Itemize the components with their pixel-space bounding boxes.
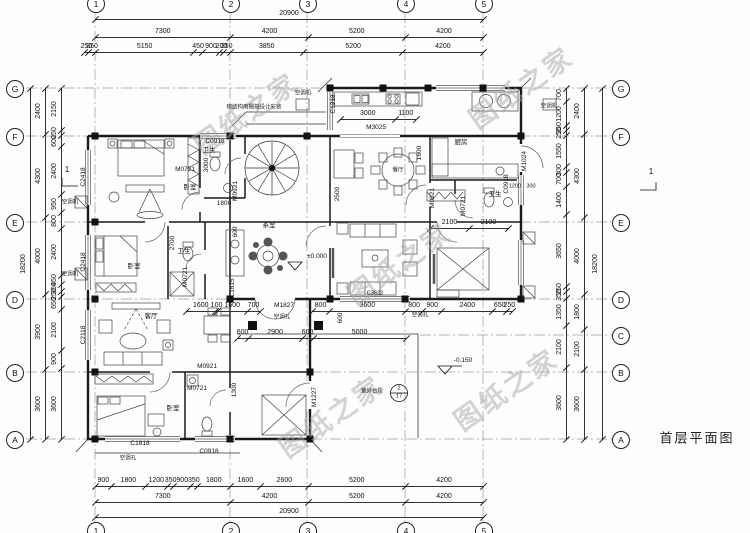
grid-bubble-left-G: G (6, 80, 24, 98)
grid-bubble-right-E: E (612, 214, 630, 232)
spiral-staircase (245, 141, 299, 195)
window-tag-c2118: C2118 (81, 326, 88, 345)
grid-bubble-left-A: A (6, 431, 24, 449)
room-label-bedroom-3: 卧室 (167, 406, 180, 413)
note-ac-hole-3: 空调孔 (412, 313, 429, 319)
room-label-bath-2: 卫生 (178, 249, 191, 256)
window-tag-c0918-d: C0918 (199, 449, 218, 456)
inline-dim-3000: 3000 (204, 158, 211, 172)
grid-bubble-right-B: B (612, 364, 630, 382)
grid-bubble-bottom-4: 4 (397, 522, 415, 533)
note-ac-unit-3: 空调机 (62, 200, 79, 206)
inline-dim-1800: 1800 (217, 201, 231, 208)
detail-ref-number: 2 (397, 386, 400, 392)
door-tag-m1827: M1827 (274, 303, 294, 310)
inline-dim-2500: 2500 (335, 187, 342, 201)
inline-dim-1300: 1300 (232, 383, 239, 397)
window-tag-c2418-b: C2418 (81, 252, 88, 271)
grid-bubble-bottom-5: 5 (475, 522, 493, 533)
grid-bubble-bottom-3: 3 (299, 522, 317, 533)
room-label-bedroom-2: 卧室 (128, 264, 141, 271)
inline-dim-300: 300 (526, 184, 535, 190)
inline-dim-1200: 1200 (509, 184, 521, 190)
room-label-kitchen: 厨房 (455, 140, 468, 147)
window-tag-c2418-a: C2418 (81, 167, 88, 186)
inline-dim-2700: 2700 (170, 236, 177, 250)
room-label-bath-3: 卫生 (489, 192, 502, 199)
inline-dim-600-a: 600 (233, 227, 240, 238)
inline-dim-1600: 1600 (417, 146, 424, 160)
grid-bubble-left-E: E (6, 214, 24, 232)
door-tag-m0721-c: M0721 (183, 267, 190, 287)
door-tag-m0721-b: M0721 (461, 196, 468, 216)
door-tag-m3025: M3025 (366, 125, 386, 132)
room-label-bedroom-1: 卧室 (184, 185, 197, 192)
note-ac-hole-2: 空调孔 (274, 315, 291, 321)
floor-plan-sheet: 1 2 3 4 5 1 2 3 4 5 G F E D B A G F E D … (0, 0, 750, 533)
window-tag-c3622: C3622 (367, 291, 383, 297)
inline-dim-600-b: 600 (338, 313, 345, 324)
note-ac-unit-4: 空调机 (62, 272, 79, 278)
door-tag-m0921-b: M0921 (430, 188, 437, 208)
grid-bubble-right-C: C (612, 327, 630, 345)
grid-bubble-right-A: A (612, 431, 630, 449)
grid-bubble-right-F: F (612, 128, 630, 146)
room-label-tea: 茶室 (263, 223, 276, 230)
door-tag-m1024: M1024 (522, 151, 529, 171)
grid-bubble-right-D: D (612, 291, 630, 309)
grid-bubble-bottom-2: 2 (222, 522, 240, 533)
note-ac-unit-2: 空调机 (541, 104, 558, 110)
grid-bubble-left-F: F (6, 128, 24, 146)
door-tag-m0721-d: M0721 (187, 386, 207, 393)
label-outdoor-steps: 室外台阶 (361, 389, 383, 395)
door-tag-m0721-a: M0721 (175, 167, 195, 174)
grid-bubble-left-D: D (6, 291, 24, 309)
grid-bubble-right-G: G (612, 80, 630, 98)
door-tag-m0921-c: M0921 (197, 364, 217, 371)
room-label-bath-1: 卫生 (203, 148, 216, 155)
room-label-living: 客厅 (145, 314, 158, 321)
level-zero: ±0.000 (307, 254, 327, 261)
interior-walls (88, 136, 521, 439)
section-marker-left: 1 (65, 166, 69, 174)
window-tag-c1218: C1218 (331, 94, 338, 113)
window-tag-c1615: C1615 (230, 278, 237, 297)
door-tag-m1227: M1227 (312, 387, 319, 407)
grid-bubble-bottom-1: 1 (87, 522, 105, 533)
door-tag-m0921-a: M0921 (233, 181, 240, 201)
note-ac-unit-1: 空调机 (295, 91, 312, 97)
grid-bubble-left-B: B (6, 364, 24, 382)
section-marker-right: 1 (649, 168, 653, 176)
window-tag-c0918-a: C0918 (205, 139, 224, 146)
window-tag-c1818: C1818 (130, 441, 149, 448)
room-label-dining: 餐厅 (392, 168, 403, 174)
note-ac-hole-1: 空调孔 (120, 456, 137, 462)
level-minus-0150: -0.150 (454, 358, 472, 365)
detail-ref-sheet: 17 (396, 394, 402, 400)
note-canopy: 钢结构雨棚按设计安装 (226, 105, 281, 111)
drawing-title: 首层平面图 (659, 428, 734, 447)
